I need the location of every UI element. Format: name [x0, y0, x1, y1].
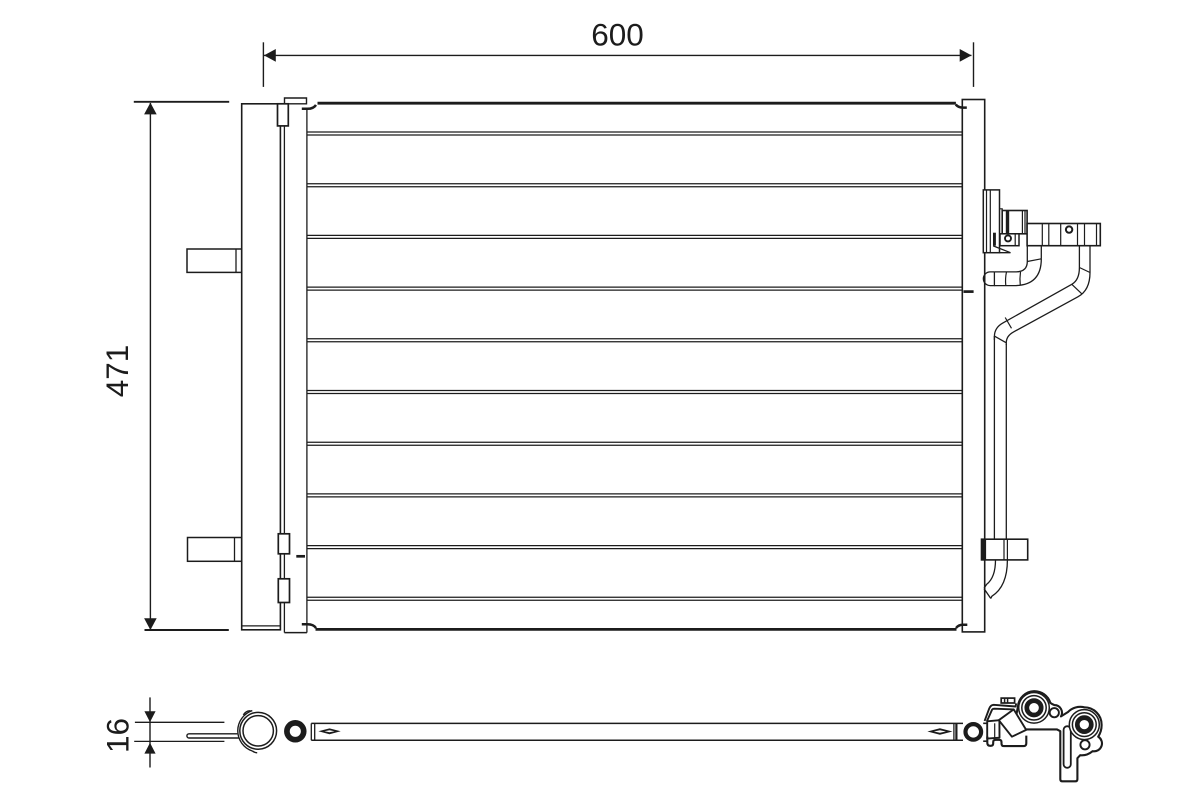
svg-text:16: 16 — [100, 718, 136, 753]
svg-text:600: 600 — [591, 16, 644, 52]
svg-text:471: 471 — [99, 345, 135, 398]
